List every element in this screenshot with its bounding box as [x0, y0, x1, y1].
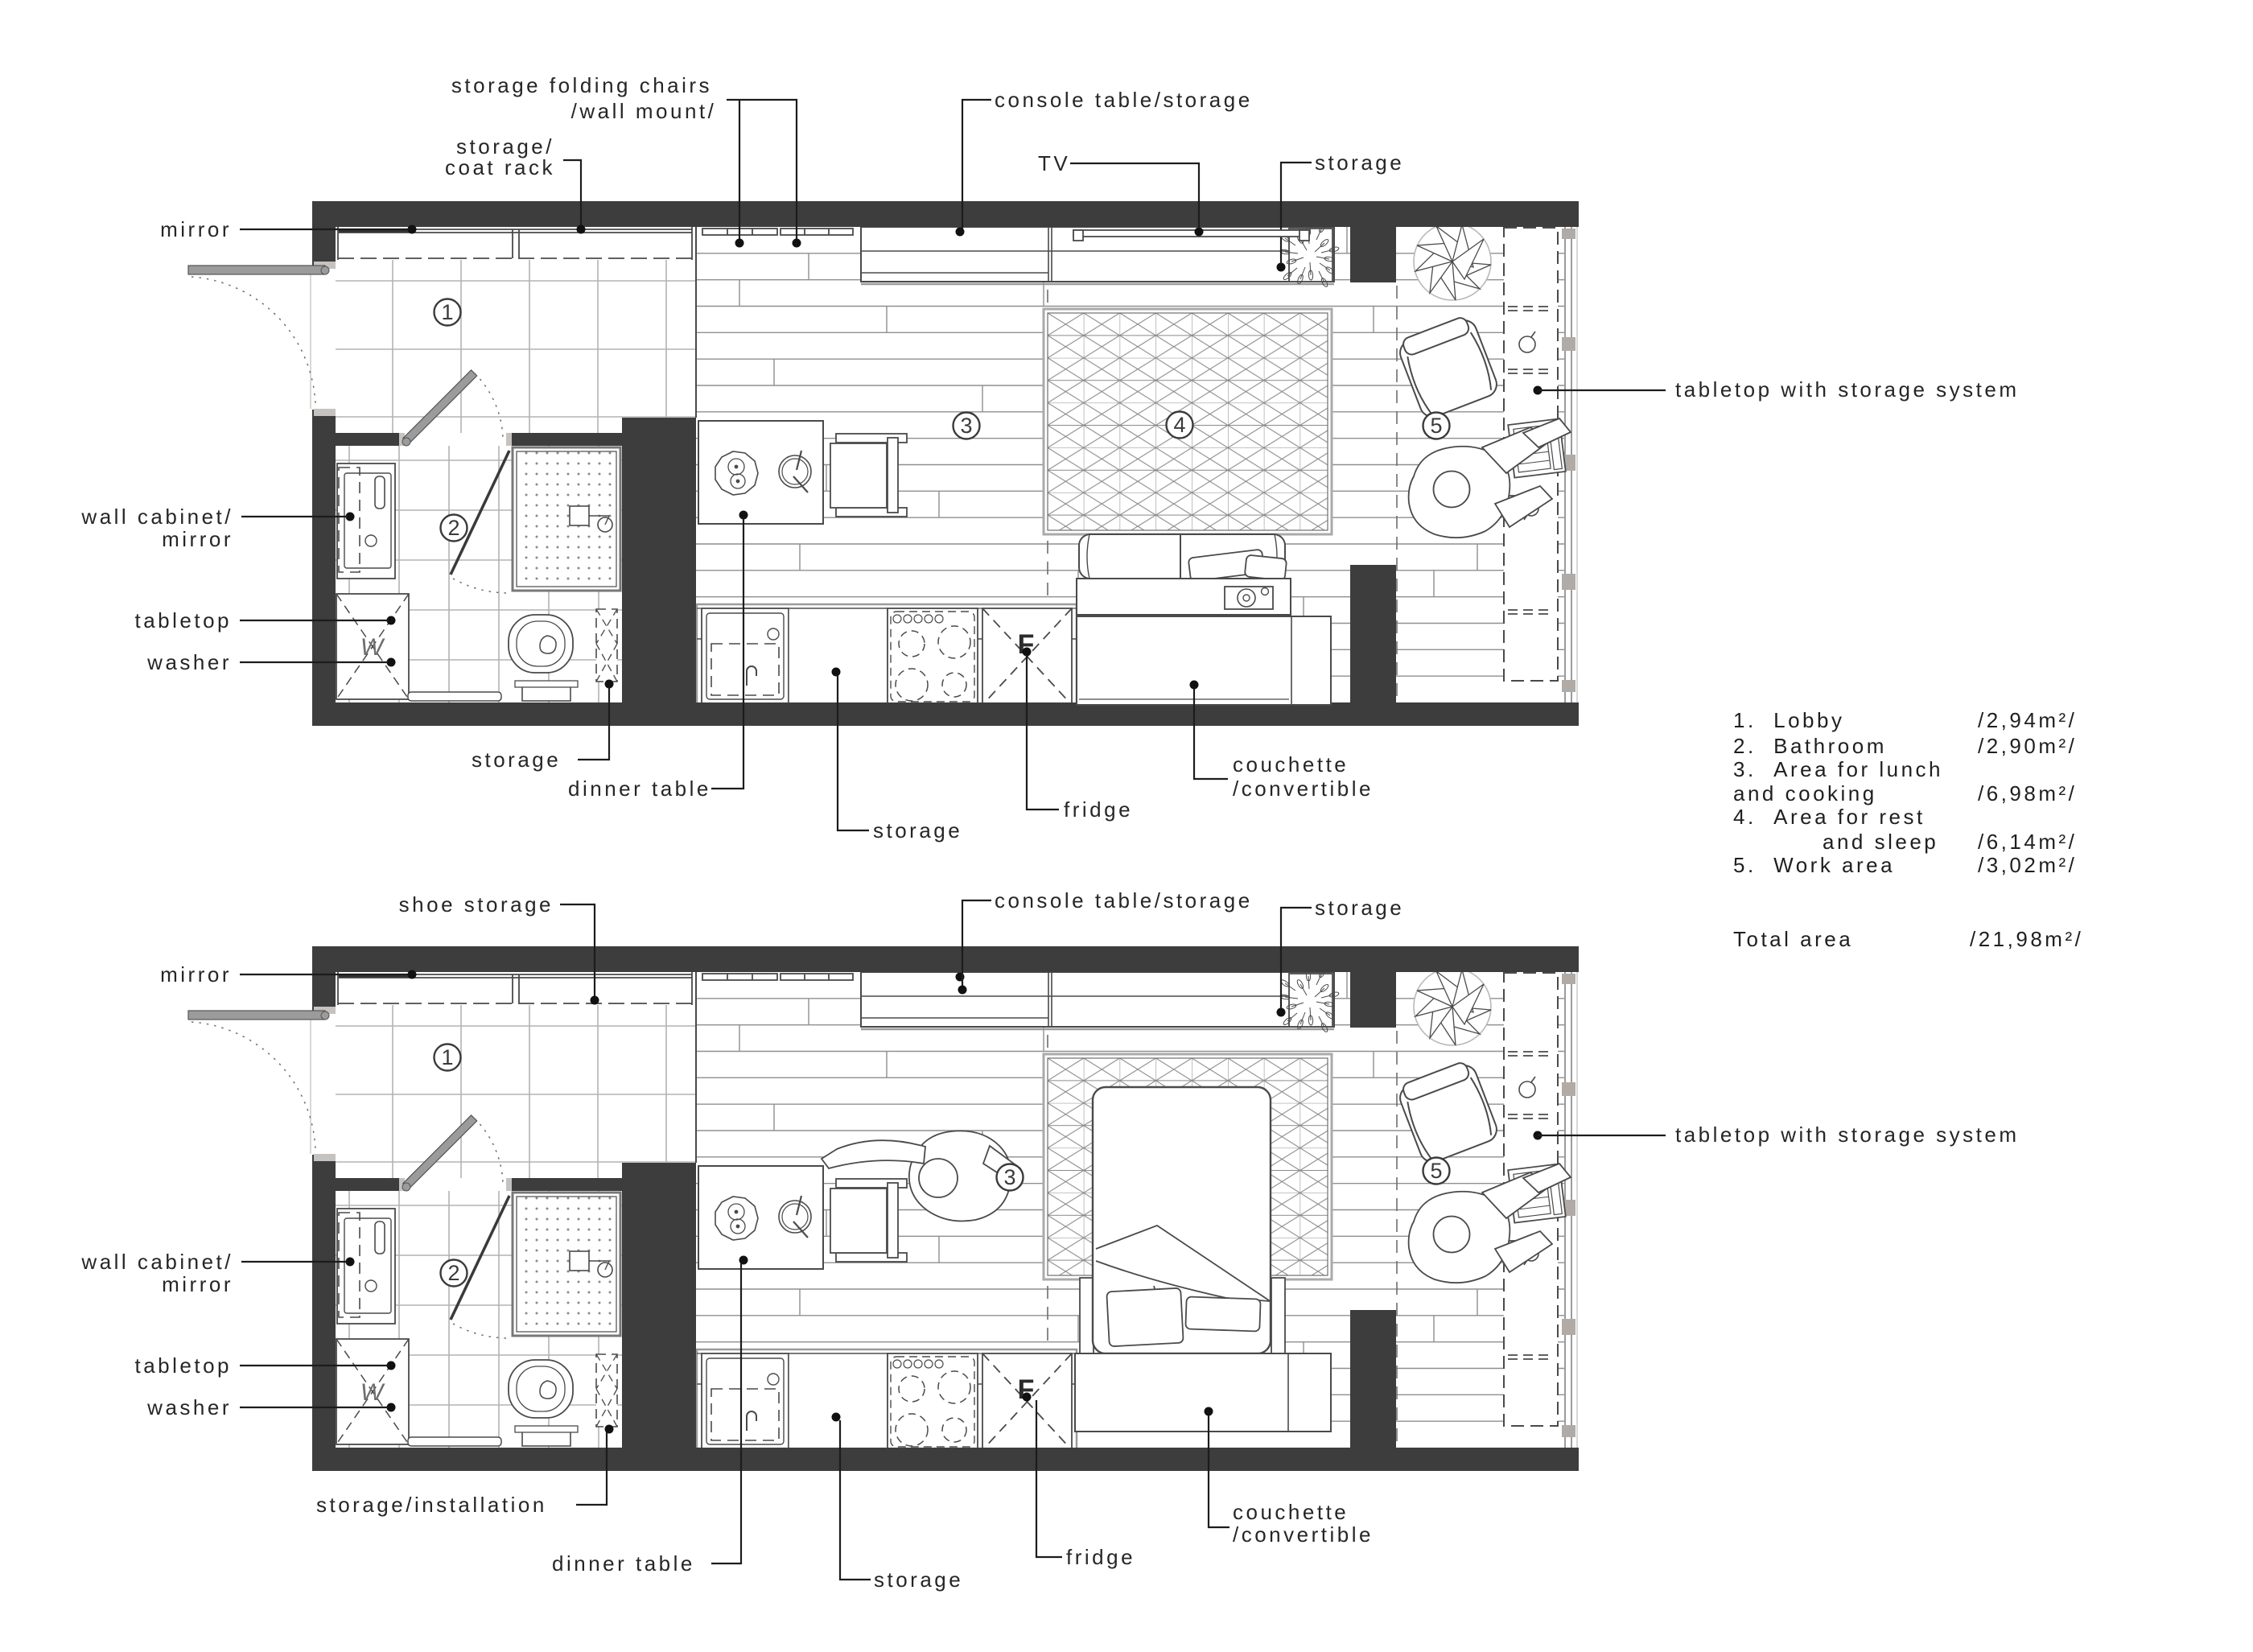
svg-text:storage folding chairs: storage folding chairs	[451, 73, 712, 97]
svg-text:2. Bathroom: 2. Bathroom	[1733, 734, 1887, 758]
svg-text:storage: storage	[874, 1568, 963, 1592]
svg-text:Total area: Total area	[1733, 927, 1853, 951]
svg-text:TV: TV	[1038, 151, 1070, 175]
svg-text:fridge: fridge	[1066, 1545, 1135, 1569]
svg-text:1. Lobby: 1. Lobby	[1733, 708, 1844, 732]
svg-text:/2,90m²/: /2,90m²/	[1978, 734, 2077, 758]
svg-text:/wall mount/: /wall mount/	[571, 99, 717, 123]
svg-text:and cooking: and cooking	[1733, 781, 1877, 805]
svg-text:shoe storage: shoe storage	[399, 892, 554, 917]
svg-text:console table/storage: console table/storage	[995, 888, 1253, 913]
svg-text:/21,98m²/: /21,98m²/	[1970, 927, 2083, 951]
svg-text:/6,14m²/: /6,14m²/	[1978, 830, 2077, 854]
svg-text:and sleep: and sleep	[1823, 830, 1938, 854]
svg-text:3: 3	[1003, 1165, 1015, 1189]
svg-text:couchette: couchette	[1233, 1500, 1349, 1524]
svg-text:4. Area for rest: 4. Area for rest	[1733, 805, 1926, 829]
svg-text:/convertible: /convertible	[1233, 1522, 1374, 1547]
svg-text:/3,02m²/: /3,02m²/	[1978, 853, 2077, 877]
svg-text:storage: storage	[873, 818, 962, 842]
svg-text:dinner table: dinner table	[552, 1551, 695, 1576]
svg-text:storage: storage	[472, 748, 561, 772]
svg-text:dinner table: dinner table	[568, 777, 711, 801]
svg-text:couchette: couchette	[1233, 752, 1349, 777]
svg-text:/convertible: /convertible	[1233, 777, 1374, 801]
svg-text:3: 3	[960, 414, 972, 438]
svg-text:coat rack: coat rack	[445, 155, 555, 179]
svg-text:/2,94m²/: /2,94m²/	[1978, 708, 2077, 732]
svg-text:storage/installation: storage/installation	[316, 1493, 547, 1517]
svg-text:fridge: fridge	[1064, 797, 1133, 822]
svg-text:3. Area for lunch: 3. Area for lunch	[1733, 757, 1943, 781]
svg-text:5. Work area: 5. Work area	[1733, 853, 1895, 877]
svg-text:console table/storage: console table/storage	[995, 88, 1253, 112]
svg-text:/6,98m²/: /6,98m²/	[1978, 781, 2077, 805]
